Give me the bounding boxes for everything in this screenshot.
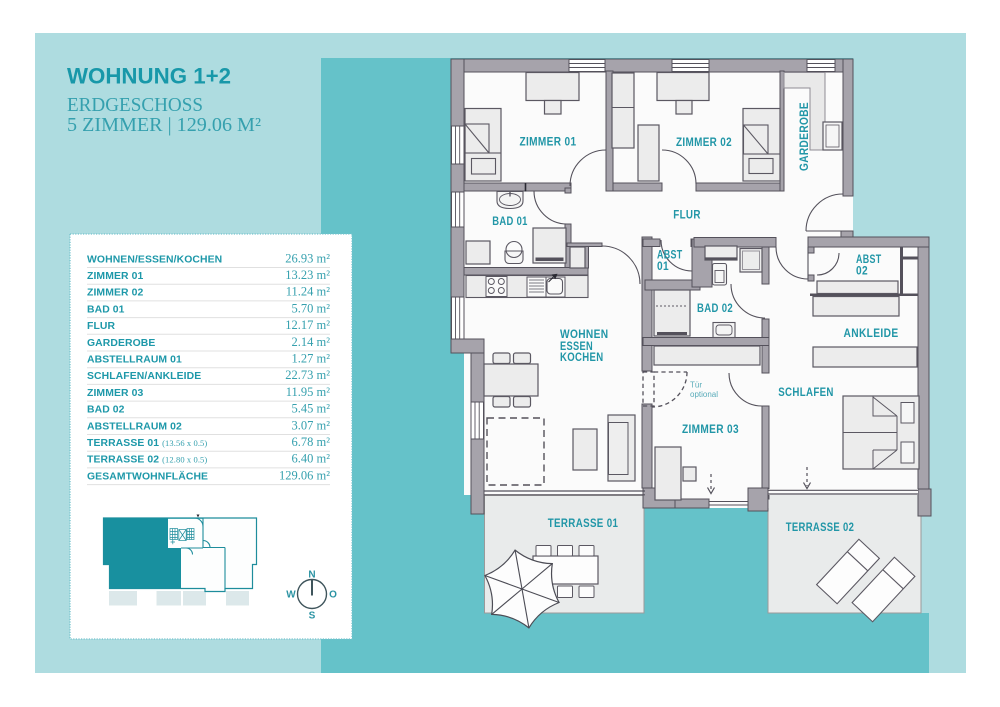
svg-text:BAD 02: BAD 02: [87, 405, 125, 416]
svg-text:SCHLAFEN/ANKLEIDE: SCHLAFEN/ANKLEIDE: [87, 371, 201, 382]
svg-text:01: 01: [657, 261, 669, 273]
svg-text:ABST: ABST: [657, 250, 683, 262]
svg-text:ABSTELLRAUM 02: ABSTELLRAUM 02: [87, 421, 182, 432]
svg-text:FLUR: FLUR: [87, 321, 115, 332]
svg-text:ZIMMER 03: ZIMMER 03: [87, 388, 143, 399]
svg-text:N: N: [308, 570, 315, 581]
svg-text:BAD 02: BAD 02: [697, 303, 733, 315]
svg-text:13.23 m²: 13.23 m²: [285, 268, 330, 282]
svg-text:Tür: Tür: [690, 381, 702, 390]
svg-text:ERDGESCHOSS: ERDGESCHOSS: [67, 94, 203, 116]
svg-text:WOHNEN/ESSEN/KOCHEN: WOHNEN/ESSEN/KOCHEN: [87, 254, 222, 265]
svg-text:1.27 m²: 1.27 m²: [292, 352, 331, 366]
svg-text:5.70 m²: 5.70 m²: [292, 301, 331, 315]
svg-text:TERRASSE 01 (13.56 x 0.5): TERRASSE 01 (13.56 x 0.5): [87, 438, 207, 449]
svg-text:ABST: ABST: [856, 254, 882, 266]
svg-text:KOCHEN: KOCHEN: [560, 352, 604, 364]
svg-text:ZIMMER 02: ZIMMER 02: [676, 137, 732, 149]
svg-text:W: W: [286, 590, 296, 601]
svg-text:GESAMTWOHNFLÄCHE: GESAMTWOHNFLÄCHE: [87, 469, 208, 482]
svg-text:22.73 m²: 22.73 m²: [285, 368, 330, 382]
svg-text:02: 02: [856, 266, 868, 278]
svg-text:ZIMMER 01: ZIMMER 01: [520, 137, 577, 149]
svg-text:TERRASSE 01: TERRASSE 01: [548, 518, 619, 530]
svg-text:ANKLEIDE: ANKLEIDE: [844, 328, 899, 340]
svg-text:11.24 m²: 11.24 m²: [286, 285, 331, 299]
svg-text:26.93 m²: 26.93 m²: [285, 251, 330, 265]
svg-text:S: S: [309, 611, 316, 622]
svg-text:ESSEN: ESSEN: [560, 341, 593, 353]
svg-text:GARDEROBE: GARDEROBE: [799, 102, 811, 171]
svg-text:BAD 01: BAD 01: [87, 304, 125, 315]
svg-text:BAD 01: BAD 01: [492, 216, 528, 228]
svg-text:ZIMMER 02: ZIMMER 02: [87, 288, 143, 299]
svg-text:optional: optional: [690, 390, 718, 399]
svg-text:FLUR: FLUR: [673, 210, 701, 222]
svg-text:GARDEROBE: GARDEROBE: [87, 338, 155, 349]
svg-text:11.95 m²: 11.95 m²: [286, 385, 331, 399]
svg-text:WOHNEN: WOHNEN: [560, 329, 609, 341]
svg-text:5.45 m²: 5.45 m²: [292, 402, 331, 416]
svg-text:129.06 m²: 129.06 m²: [279, 468, 330, 482]
svg-text:6.40 m²: 6.40 m²: [292, 452, 331, 466]
svg-text:3.07 m²: 3.07 m²: [292, 418, 331, 432]
svg-text:SCHLAFEN: SCHLAFEN: [778, 387, 834, 399]
svg-text:ABSTELLRAUM 01: ABSTELLRAUM 01: [87, 355, 182, 366]
svg-text:WOHNUNG 1+2: WOHNUNG 1+2: [67, 64, 231, 89]
svg-text:O: O: [329, 590, 337, 601]
svg-text:2.14 m²: 2.14 m²: [292, 335, 331, 349]
svg-text:12.17 m²: 12.17 m²: [285, 318, 330, 332]
svg-text:ZIMMER 03: ZIMMER 03: [682, 424, 739, 436]
svg-text:ZIMMER 01: ZIMMER 01: [87, 271, 143, 282]
svg-text:6.78 m²: 6.78 m²: [292, 435, 331, 449]
svg-text:TERRASSE 02: TERRASSE 02: [786, 522, 855, 534]
svg-text:TERRASSE 02 (12.80 x 0.5): TERRASSE 02 (12.80 x 0.5): [87, 455, 207, 466]
svg-text:5 ZIMMER | 129.06 M²: 5 ZIMMER | 129.06 M²: [67, 114, 261, 136]
